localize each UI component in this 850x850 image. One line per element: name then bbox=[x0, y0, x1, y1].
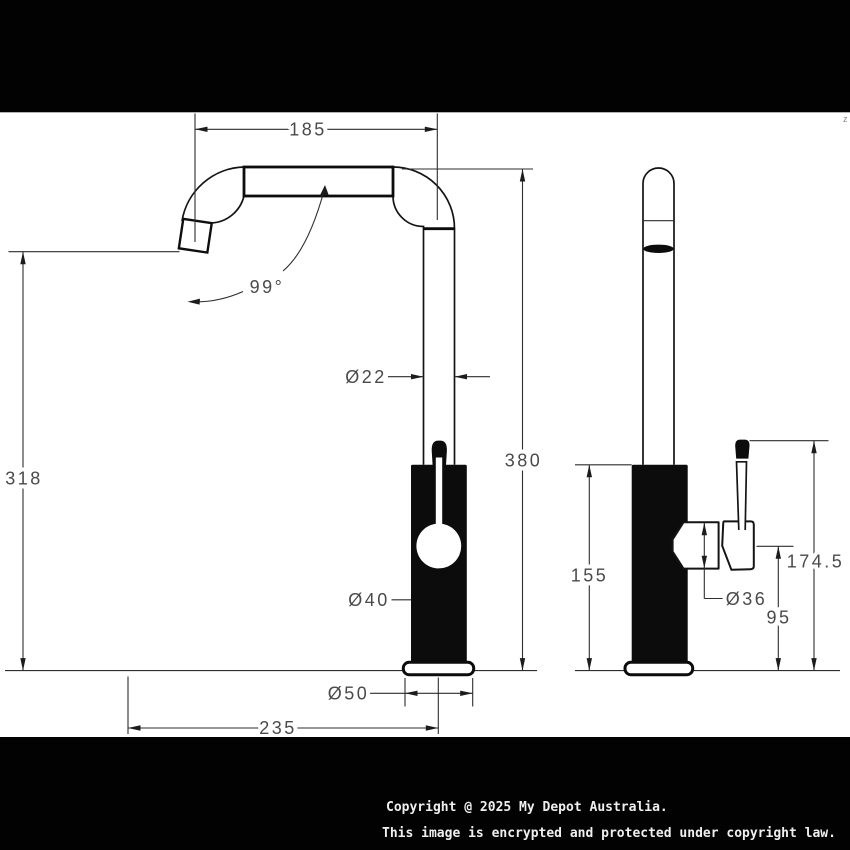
dim-318-lines bbox=[9, 252, 180, 671]
spout-inner-edge bbox=[212, 196, 424, 465]
dim-handle-top-height-label: 174.5 bbox=[787, 552, 845, 572]
arrow-left-icon bbox=[405, 691, 418, 696]
arrow-left-icon bbox=[188, 299, 201, 305]
arrow-right-icon bbox=[411, 374, 424, 379]
arrow-down-icon bbox=[776, 658, 781, 671]
arrow-up-icon bbox=[520, 169, 525, 182]
dim-body-height-label: 155 bbox=[571, 566, 609, 586]
watermark-line1: Copyright @ 2025 My Depot Australia. bbox=[386, 800, 668, 815]
dim-total-reach-label: 235 bbox=[259, 718, 297, 738]
side-body bbox=[632, 465, 688, 664]
arrow-left-icon bbox=[455, 374, 468, 379]
arrow-down-icon bbox=[811, 658, 816, 671]
dim-o50-lines bbox=[368, 678, 473, 707]
front-lever-slot bbox=[436, 458, 442, 525]
dim-99-arc-upper bbox=[283, 189, 325, 271]
dim-tube-diameter-label: Ø22 bbox=[345, 367, 387, 387]
front-base bbox=[403, 662, 473, 674]
side-handle-knob bbox=[735, 440, 749, 459]
arrow-right-icon bbox=[460, 691, 473, 696]
arrow-down-icon bbox=[20, 658, 25, 671]
side-handle-hub bbox=[673, 522, 719, 568]
arrow-right-icon bbox=[426, 725, 439, 730]
spout-tube-section bbox=[244, 167, 393, 196]
side-riser-tube bbox=[643, 168, 674, 465]
front-view bbox=[5, 167, 537, 675]
arrow-up-icon bbox=[587, 465, 592, 478]
spout-outer-edge bbox=[182, 167, 455, 465]
corner-mark: z bbox=[843, 114, 848, 124]
faucet-technical-drawing: 185 99° Ø22 380 318 Ø40 Ø50 23 bbox=[0, 0, 850, 850]
arrow-up-icon bbox=[776, 546, 781, 559]
arrow-left-icon bbox=[195, 127, 208, 132]
arrow-left-icon bbox=[128, 725, 141, 730]
dim-body-diameter-label: Ø40 bbox=[348, 590, 390, 610]
dim-base-diameter-label: Ø50 bbox=[328, 684, 370, 704]
dim-spout-height-label: 380 bbox=[505, 451, 543, 471]
drawing-canvas: 185 99° Ø22 380 318 Ø40 Ø50 23 bbox=[0, 0, 850, 850]
side-tube-joint-ellipse bbox=[643, 245, 674, 253]
arrow-right-icon bbox=[425, 127, 438, 132]
side-base bbox=[625, 662, 693, 674]
arrow-up-icon bbox=[811, 441, 816, 454]
dim-handle-lower-height-label: 95 bbox=[766, 608, 791, 628]
dim-spout-reach-label: 185 bbox=[289, 120, 327, 140]
dim-spout-angle-label: 99° bbox=[250, 277, 285, 297]
arrow-down-icon bbox=[587, 658, 592, 671]
watermark-line2: This image is encrypted and protected un… bbox=[382, 826, 836, 841]
arrow-down-icon bbox=[520, 658, 525, 671]
arrow-up-icon bbox=[319, 185, 328, 197]
dim-handle-diameter-label: Ø36 bbox=[726, 589, 768, 609]
front-handle-joint-circle bbox=[416, 524, 461, 569]
dim-outlet-height-label: 318 bbox=[5, 469, 43, 489]
arrow-up-icon bbox=[20, 252, 25, 265]
side-lever-arm bbox=[737, 462, 747, 530]
top-black-bar bbox=[0, 0, 850, 112]
